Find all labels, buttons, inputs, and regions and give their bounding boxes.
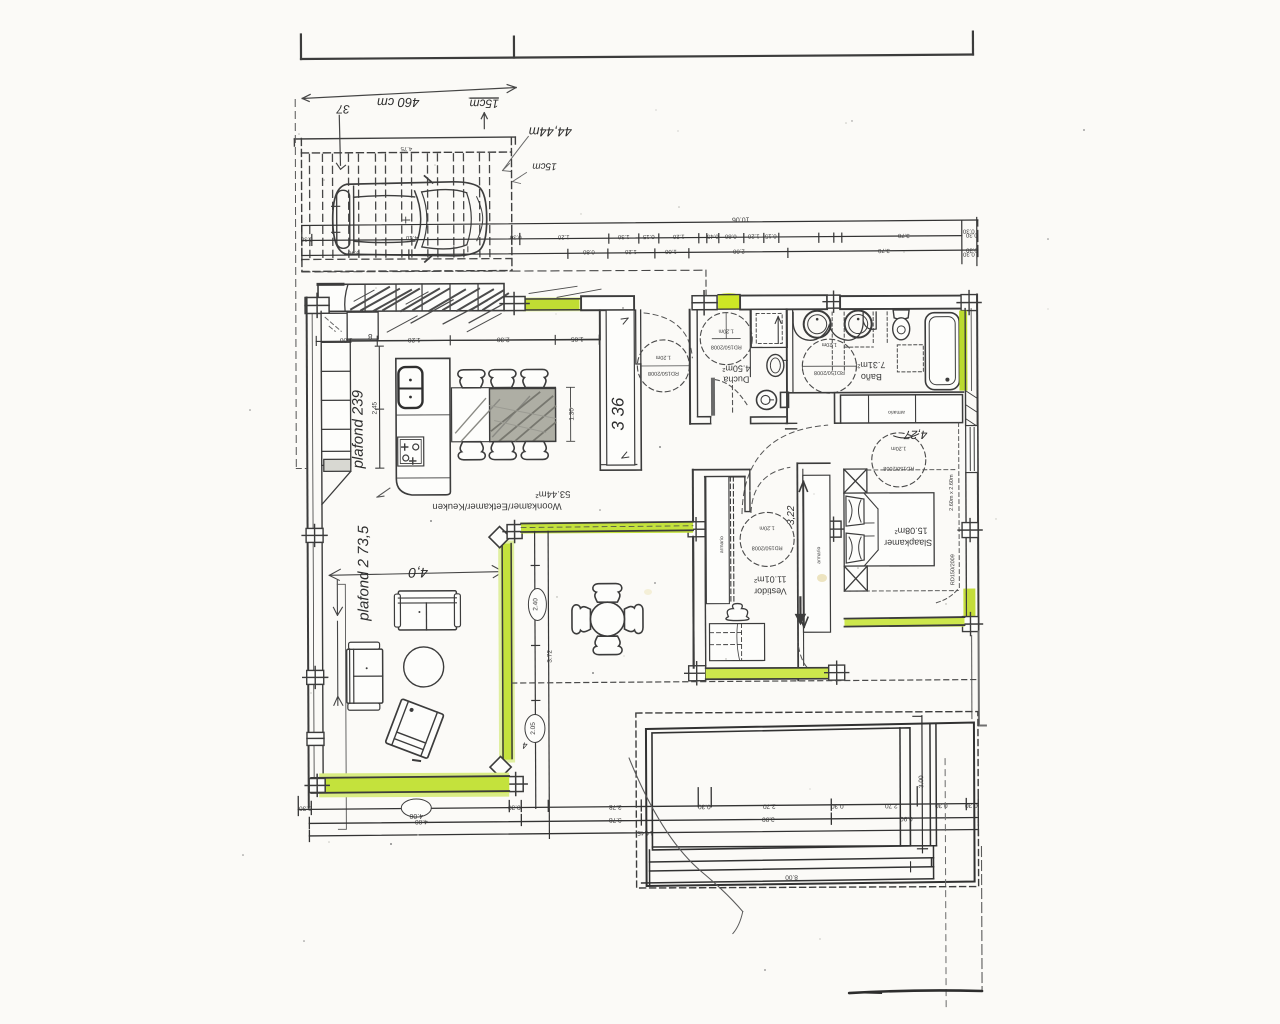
svg-text:RD150/2008: RD150/2008 (814, 369, 845, 375)
svg-text:RD150/2009: RD150/2009 (950, 554, 956, 585)
svg-text:3.78: 3.78 (609, 803, 622, 810)
svg-text:3.78: 3.78 (609, 816, 622, 823)
svg-text:1.30: 1.30 (569, 408, 576, 421)
svg-text:1.20m: 1.20m (891, 445, 907, 451)
svg-text:Ducha: Ducha (723, 375, 749, 385)
svg-text:1.20: 1.20 (672, 233, 684, 239)
svg-text:3.70: 3.70 (877, 247, 889, 253)
svg-text:0.30: 0.30 (962, 251, 974, 257)
svg-text:4.00: 4.00 (415, 818, 428, 825)
svg-text:plafond 2 73,5: plafond 2 73,5 (355, 525, 372, 622)
svg-text:15.08m²: 15.08m² (895, 526, 928, 536)
svg-text:3.00: 3.00 (918, 775, 925, 788)
svg-text:1.20: 1.20 (408, 336, 421, 343)
svg-text:6.40: 6.40 (347, 249, 359, 255)
svg-text:1.20: 1.20 (747, 232, 759, 238)
svg-text:0.80: 0.80 (582, 248, 594, 254)
svg-text:37: 37 (335, 102, 350, 116)
svg-text:0.30: 0.30 (299, 804, 312, 811)
svg-text:4.00: 4.00 (409, 812, 423, 819)
svg-text:0.30: 0.30 (962, 228, 974, 234)
svg-text:14.45: 14.45 (637, 829, 654, 836)
svg-text:0.30: 0.30 (965, 802, 978, 809)
svg-text:Slaapkamer: Slaapkamer (884, 538, 932, 548)
svg-text:RD150/2008: RD150/2008 (752, 544, 783, 550)
svg-text:0.80: 0.80 (724, 233, 736, 239)
svg-text:armario: armario (816, 547, 822, 564)
svg-text:1.20: 1.20 (557, 233, 569, 239)
svg-text:15cm: 15cm (470, 97, 499, 111)
svg-text:4,0: 4,0 (408, 565, 428, 581)
svg-text:RD150/2008: RD150/2008 (648, 370, 679, 376)
svg-text:4.50m²: 4.50m² (722, 364, 750, 374)
svg-text:armario: armario (719, 536, 725, 553)
svg-text:1.20m: 1.20m (759, 524, 775, 530)
svg-text:3 36: 3 36 (608, 397, 627, 431)
svg-text:15cm: 15cm (532, 160, 557, 171)
svg-text:Vestidor: Vestidor (754, 586, 787, 596)
svg-text:1.05: 1.05 (571, 335, 584, 342)
svg-text:1.20m: 1.20m (655, 354, 671, 360)
svg-text:RD150/2008: RD150/2008 (711, 344, 742, 350)
svg-text:0.45: 0.45 (706, 233, 718, 239)
svg-text:1.00: 1.00 (340, 336, 353, 343)
svg-text:2.70: 2.70 (885, 802, 898, 809)
svg-text:2.05: 2.05 (530, 722, 537, 735)
svg-text:11.01m²: 11.01m² (754, 574, 786, 584)
svg-text:1.30: 1.30 (617, 233, 629, 239)
svg-text:8: 8 (367, 332, 372, 341)
svg-text:0.30: 0.30 (508, 804, 521, 811)
svg-text:3.90: 3.90 (762, 815, 775, 822)
svg-text:0.15: 0.15 (642, 233, 654, 239)
svg-text:460 cm: 460 cm (377, 95, 420, 110)
svg-text:2.30: 2.30 (497, 336, 510, 343)
svg-text:4,27: 4,27 (903, 428, 928, 442)
svg-text:Woonkamer/Eetkamer/Keuken: Woonkamer/Eetkamer/Keuken (432, 500, 561, 512)
svg-text:7.31m²: 7.31m² (857, 360, 885, 370)
svg-text:2.40: 2.40 (532, 598, 539, 611)
svg-text:4: 4 (522, 740, 527, 750)
svg-text:1.20m: 1.20m (821, 341, 837, 347)
svg-text:2.45: 2.45 (372, 401, 379, 414)
svg-text:10.06: 10.06 (732, 216, 750, 223)
svg-text:0.15: 0.15 (764, 232, 776, 238)
svg-text:1.00: 1.00 (664, 248, 676, 254)
svg-text:0.30: 0.30 (509, 234, 521, 240)
svg-text:0.30: 0.30 (698, 803, 711, 810)
svg-text:2.70: 2.70 (763, 802, 776, 809)
svg-text:8.00: 8.00 (785, 873, 798, 880)
svg-text:3.70: 3.70 (897, 232, 909, 238)
svg-text:53.44m²: 53.44m² (535, 488, 570, 499)
svg-text:0.30: 0.30 (300, 235, 312, 241)
svg-text:2.00: 2.00 (732, 248, 744, 254)
svg-text:plafond 239: plafond 239 (349, 389, 366, 469)
svg-text:4.75: 4.75 (400, 145, 412, 151)
svg-text:4.10: 4.10 (405, 234, 417, 240)
svg-text:Baño: Baño (861, 372, 882, 382)
svg-text:1.20m: 1.20m (718, 328, 734, 334)
svg-text:0.30: 0.30 (831, 802, 844, 809)
svg-text:3,22: 3,22 (786, 505, 797, 525)
svg-text:1.20: 1.20 (624, 248, 636, 254)
svg-text:44,44m: 44,44m (528, 124, 572, 139)
svg-text:3.72: 3.72 (547, 650, 554, 663)
svg-text:armario: armario (888, 409, 905, 415)
svg-text:2.60m x 2.60m: 2.60m x 2.60m (949, 474, 955, 511)
